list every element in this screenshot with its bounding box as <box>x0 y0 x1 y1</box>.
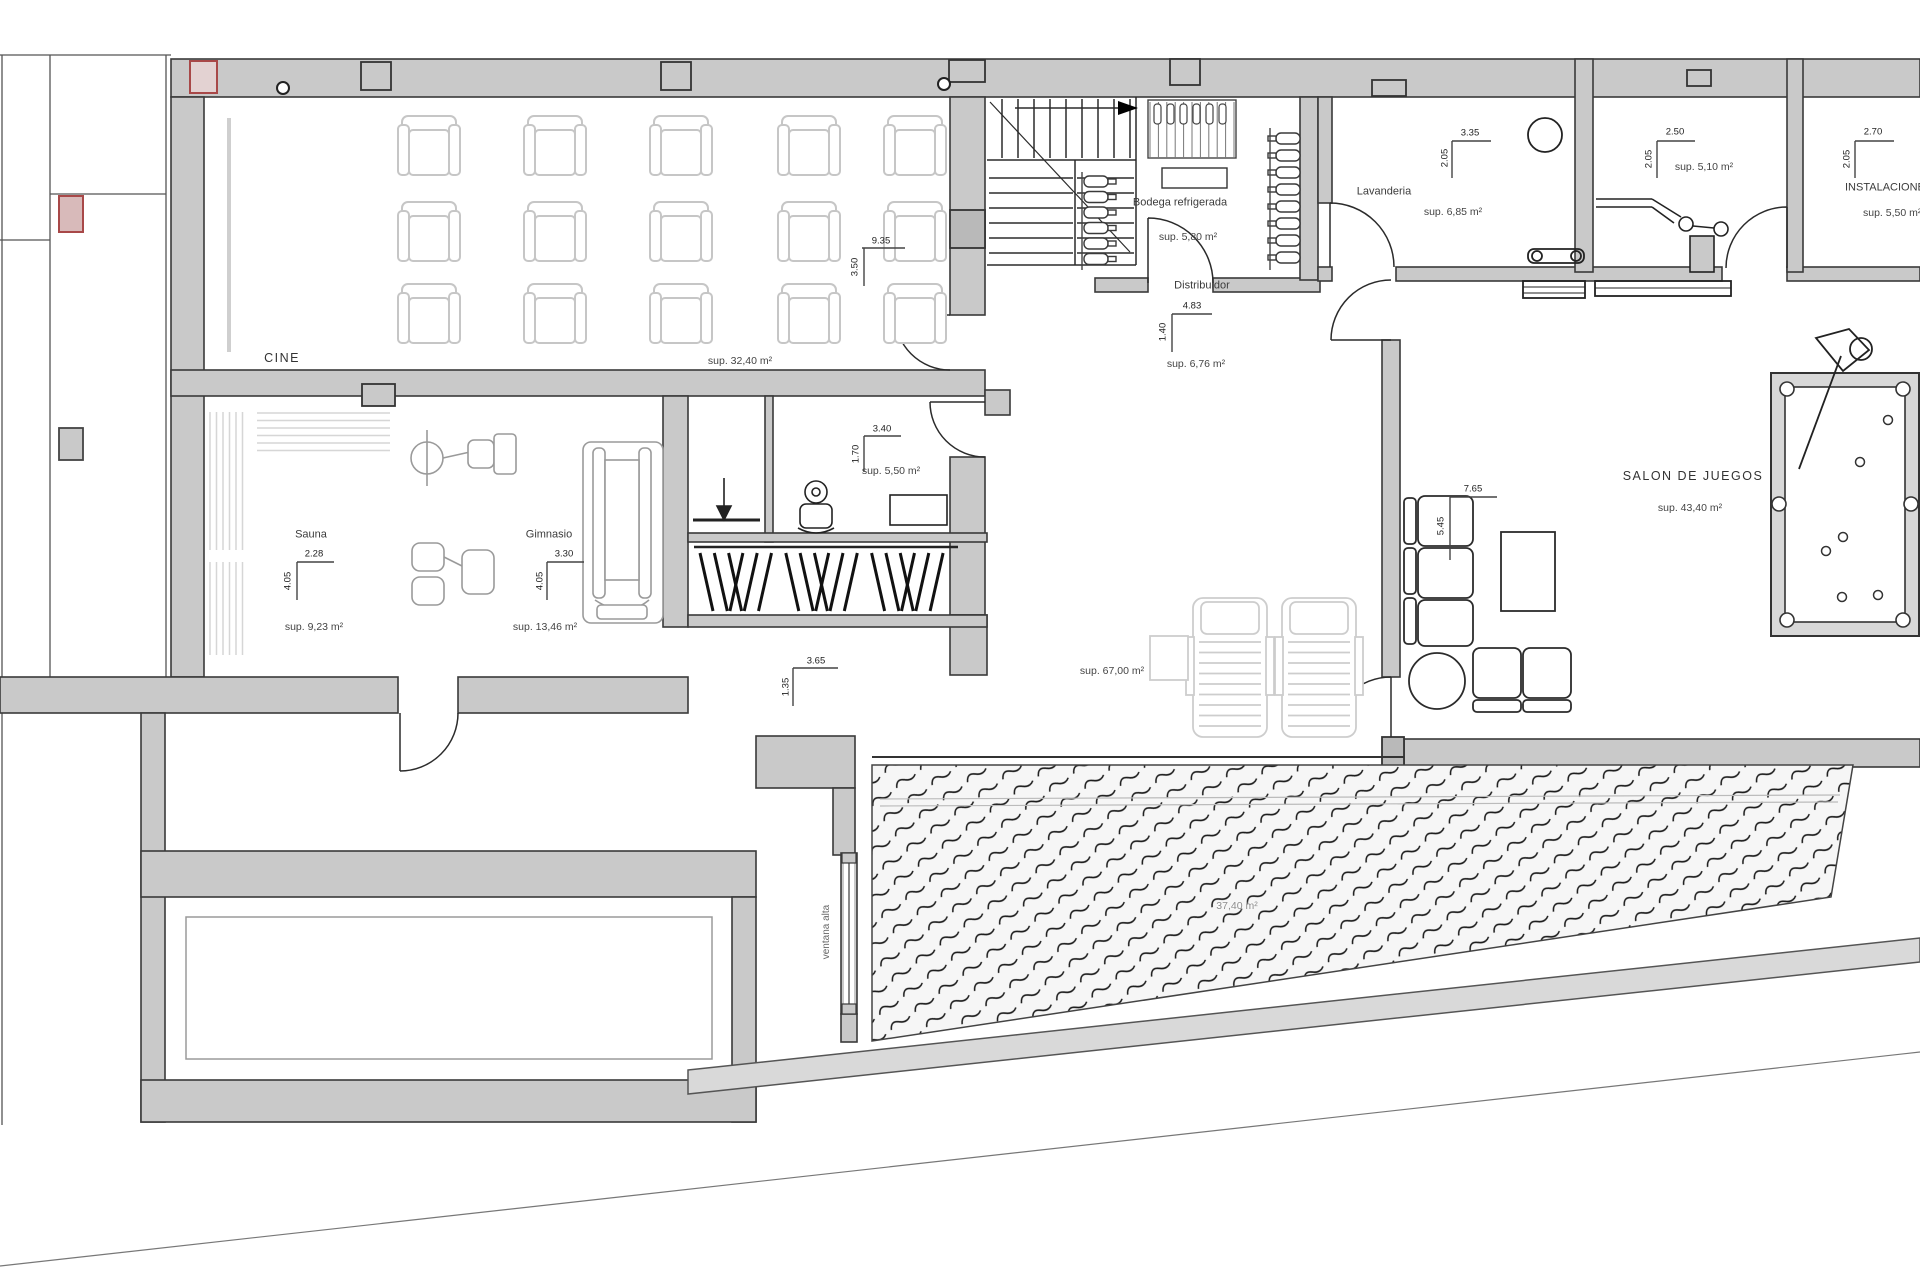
room-label-lavanderia: Lavanderia <box>1357 187 1411 198</box>
area-terraza: sup. 67,00 m² <box>1080 666 1144 677</box>
cinema-seats <box>398 116 946 343</box>
area-instalaciones: sup. 5,50 m² <box>1863 208 1920 219</box>
sofa <box>1404 496 1571 712</box>
area-distribuidor: sup. 6,76 m² <box>1167 359 1225 370</box>
stair-direction-arrow <box>1118 101 1138 115</box>
room-label-salon: SALON DE JUEGOS <box>1623 470 1764 483</box>
floor-plan: CINE sup. 32,40 m² 9.35 3.50 Sauna 2.28 … <box>0 0 1920 1280</box>
area-cine: sup. 32,40 m² <box>708 356 772 367</box>
room-label-bodega: Bodega refrigerada <box>1133 198 1227 209</box>
closet-hangers <box>694 547 958 611</box>
room-label-cine: CINE <box>264 352 300 365</box>
dim-lavanderia-w: 3.35 <box>1461 128 1480 138</box>
dim-sauna-w: 2.28 <box>305 549 324 559</box>
floor-plan-drawing <box>0 0 1920 1280</box>
high-window <box>842 853 856 1014</box>
ventana-alta-label: ventana alta <box>822 905 832 960</box>
dim-distribuidor-h: 1.40 <box>1158 323 1168 342</box>
dim-caldera-w: 2.50 <box>1666 127 1685 137</box>
dim-caldera-h: 2.05 <box>1644 150 1654 169</box>
dim-gimnasio-w: 3.30 <box>555 549 574 559</box>
dim-terraza-w: 3.65 <box>807 656 826 666</box>
coffee-table <box>1501 532 1555 611</box>
pool-table <box>1771 329 1919 636</box>
dim-gimnasio-h: 4.05 <box>535 572 545 591</box>
dim-salon-h: 5.45 <box>1436 517 1446 536</box>
area-lavanderia: sup. 6,85 m² <box>1424 207 1482 218</box>
area-salon: sup. 43,40 m² <box>1658 503 1722 514</box>
area-bano: sup. 5,50 m² <box>862 466 920 477</box>
dim-instalaciones-w: 2.70 <box>1864 127 1883 137</box>
dim-bano-w: 3.40 <box>873 424 892 434</box>
room-label-sauna: Sauna <box>295 530 327 541</box>
room-label-instalaciones: INSTALACIONES <box>1845 183 1920 194</box>
dim-cine-w: 9.35 <box>872 236 891 246</box>
area-bodega: sup. 5,80 m² <box>1159 232 1217 243</box>
gym-equipment <box>411 430 663 623</box>
boiler-equipment <box>1596 199 1728 272</box>
dim-cine-h: 3.50 <box>850 258 860 277</box>
dim-bano-h: 1.70 <box>851 445 861 464</box>
area-caldera: sup. 5,10 m² <box>1675 162 1733 173</box>
sun-loungers <box>1186 598 1363 737</box>
patio-inner-outline <box>186 917 712 1059</box>
dim-salon-w: 7.65 <box>1464 484 1483 494</box>
room-label-distribuidor: Distribuidor <box>1174 281 1230 292</box>
room-label-gimnasio: Gimnasio <box>526 530 572 541</box>
dim-distribuidor-w: 4.83 <box>1183 301 1202 311</box>
dim-terraza-h: 1.35 <box>781 678 791 697</box>
area-piscina: 37,40 m² <box>1216 901 1257 912</box>
dim-instalaciones-h: 2.05 <box>1842 150 1852 169</box>
area-sauna: sup. 9,23 m² <box>285 622 343 633</box>
area-gimnasio: sup. 13,46 m² <box>513 622 577 633</box>
side-table <box>1409 653 1465 709</box>
dim-sauna-h: 4.05 <box>283 572 293 591</box>
bathroom-fixtures <box>693 478 947 533</box>
dim-lavanderia-h: 2.05 <box>1440 149 1450 168</box>
lounger-side-table <box>1150 636 1188 680</box>
